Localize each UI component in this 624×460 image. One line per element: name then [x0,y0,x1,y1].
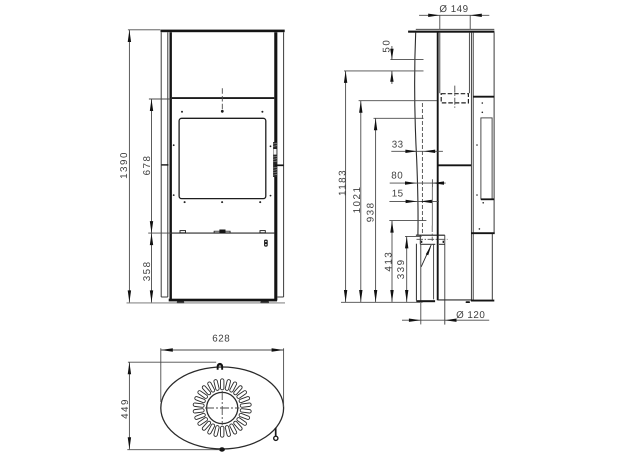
svg-text:413: 413 [384,251,395,272]
svg-text:358: 358 [142,260,153,281]
svg-text:80: 80 [391,170,403,181]
svg-text:1183: 1183 [337,169,348,196]
svg-text:1021: 1021 [352,186,363,214]
svg-text:678: 678 [142,155,153,176]
svg-text:938: 938 [365,201,376,222]
svg-text:15: 15 [392,188,404,199]
svg-text:339: 339 [396,258,407,279]
svg-text:628: 628 [212,333,230,344]
svg-text:33: 33 [392,139,404,150]
svg-text:Ø 149: Ø 149 [439,4,468,15]
svg-text:1390: 1390 [119,151,130,179]
svg-text:Ø 120: Ø 120 [456,310,485,321]
